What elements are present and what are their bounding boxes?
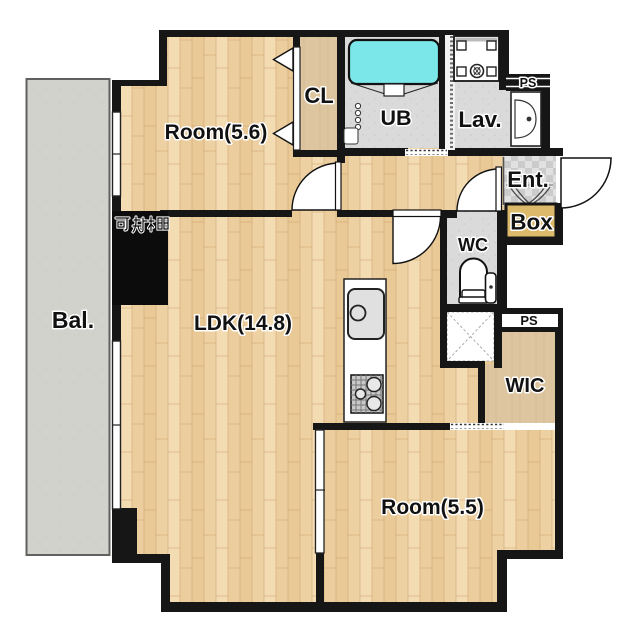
svg-text:Box: Box [510, 210, 553, 235]
svg-text:LDK(14.8): LDK(14.8) [194, 312, 292, 335]
svg-text:Room(5.6): Room(5.6) [165, 121, 268, 144]
svg-text:UB: UB [380, 106, 411, 130]
svg-text:WIC: WIC [506, 375, 545, 397]
svg-text:PS: PS [520, 313, 538, 328]
svg-text:Room(5.5): Room(5.5) [381, 496, 484, 519]
svg-text:Ent.: Ent. [507, 167, 549, 192]
svg-text:WC: WC [458, 235, 488, 255]
svg-text:Bal.: Bal. [52, 307, 94, 333]
svg-text:CL: CL [304, 83, 333, 108]
svg-text:Lav.: Lav. [458, 107, 501, 132]
svg-text:PS: PS [520, 76, 537, 90]
